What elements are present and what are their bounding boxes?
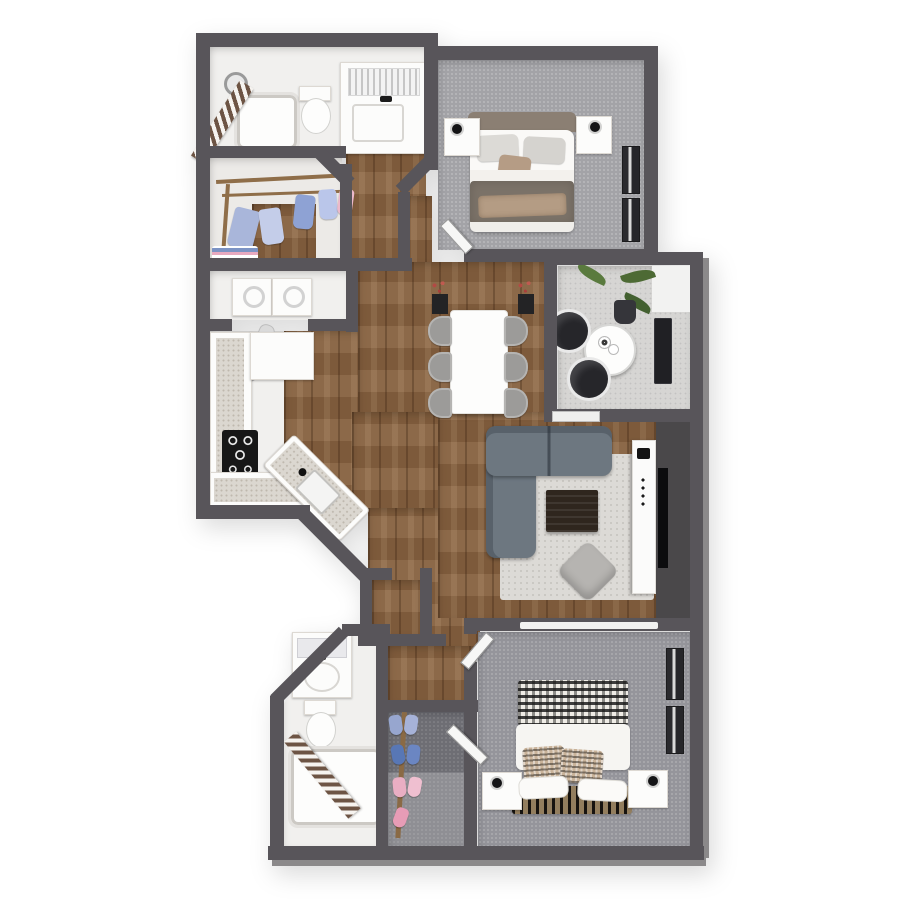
hanging-shirt-blue-3 (292, 194, 315, 230)
bed2-plaid-blanket (518, 680, 628, 726)
lamp-2-right (648, 776, 658, 786)
wall-bath2-closet-divider (376, 646, 388, 858)
patio-slider-door (552, 411, 600, 422)
floor-mid-hall (352, 412, 448, 512)
tv-screen (658, 468, 668, 568)
wall-left-lower (270, 696, 284, 860)
vanity-1-towel (348, 68, 420, 96)
wall-bath1-top (196, 33, 438, 47)
dining-chair-l1 (428, 316, 452, 346)
wall-kitchen-bottom (196, 505, 310, 519)
wall-vestibule-top (360, 568, 392, 580)
plant-sprig-left (430, 280, 448, 298)
coffee-cup-2 (608, 344, 619, 355)
nightstand-2-right (628, 770, 668, 808)
washer-door-icon (243, 286, 265, 308)
bedroom2-closet-track (520, 622, 658, 629)
shoe-pink-1a (392, 777, 407, 798)
floorplan (0, 0, 900, 900)
bed1-headboard (468, 112, 576, 132)
wall-closet-kitchen-divider (196, 258, 412, 271)
wall-bed1-top (424, 46, 658, 60)
wall-dining-patio-divider (544, 252, 557, 422)
bedroom1-window-b (622, 198, 640, 242)
palm-pot (614, 300, 636, 324)
patio-console (654, 318, 672, 384)
tv-console (632, 440, 656, 594)
dining-table (450, 310, 508, 414)
bed2-pillow-white-left (518, 775, 569, 800)
bed2-pillow-white-right (577, 778, 628, 803)
toilet-2-bowl (306, 712, 336, 748)
nightstand-2-left (482, 772, 522, 810)
wall-bath2-top (342, 624, 390, 636)
coffee-table (546, 490, 598, 532)
sofa-seat (486, 426, 612, 476)
dryer-door-icon (283, 286, 305, 308)
bedroom2-window-a (666, 648, 684, 700)
wall-bed1-right (644, 46, 658, 263)
floorplan-canvas (0, 0, 900, 900)
patio-ledge (652, 266, 690, 312)
kitchen-upper-cabinet (250, 332, 314, 380)
nightstand-1-left (444, 118, 480, 156)
wall-kitchen-left (196, 269, 210, 518)
dining-chair-l2 (428, 352, 452, 382)
floor-hall-bed2 (388, 646, 476, 702)
lamp-1-left (452, 124, 462, 134)
shoe-blue-1a (388, 714, 404, 736)
bed1-throw (478, 193, 567, 218)
wall-kitchen-top-b (308, 319, 358, 331)
wall-bottom (268, 846, 704, 860)
bed1-foot-sheet (470, 222, 574, 232)
vanity-1-faucet (380, 96, 392, 102)
wall-patio-top (544, 252, 703, 265)
bedroom2-window-b (666, 706, 684, 754)
plant-sprig-right (516, 280, 534, 298)
lamp-1-right (590, 122, 600, 132)
cooktop (222, 430, 258, 478)
console-knobs (641, 476, 645, 506)
toilet-1-bowl (301, 98, 331, 134)
lamp-2-left (492, 778, 502, 788)
bedroom1-window-a (622, 146, 640, 194)
vanity-1-sink (352, 104, 404, 142)
patio-chair-2 (570, 360, 608, 398)
hanging-shirt-blue-4 (318, 189, 338, 220)
wall-shoe-closet-top (376, 700, 478, 712)
wall-patio-right (690, 252, 703, 422)
console-speaker (637, 448, 650, 459)
wall-bed2-left-a (464, 618, 477, 634)
wall-face-right (703, 258, 709, 858)
dining-chair-l3 (428, 388, 452, 418)
wall-right-lower (690, 422, 703, 860)
